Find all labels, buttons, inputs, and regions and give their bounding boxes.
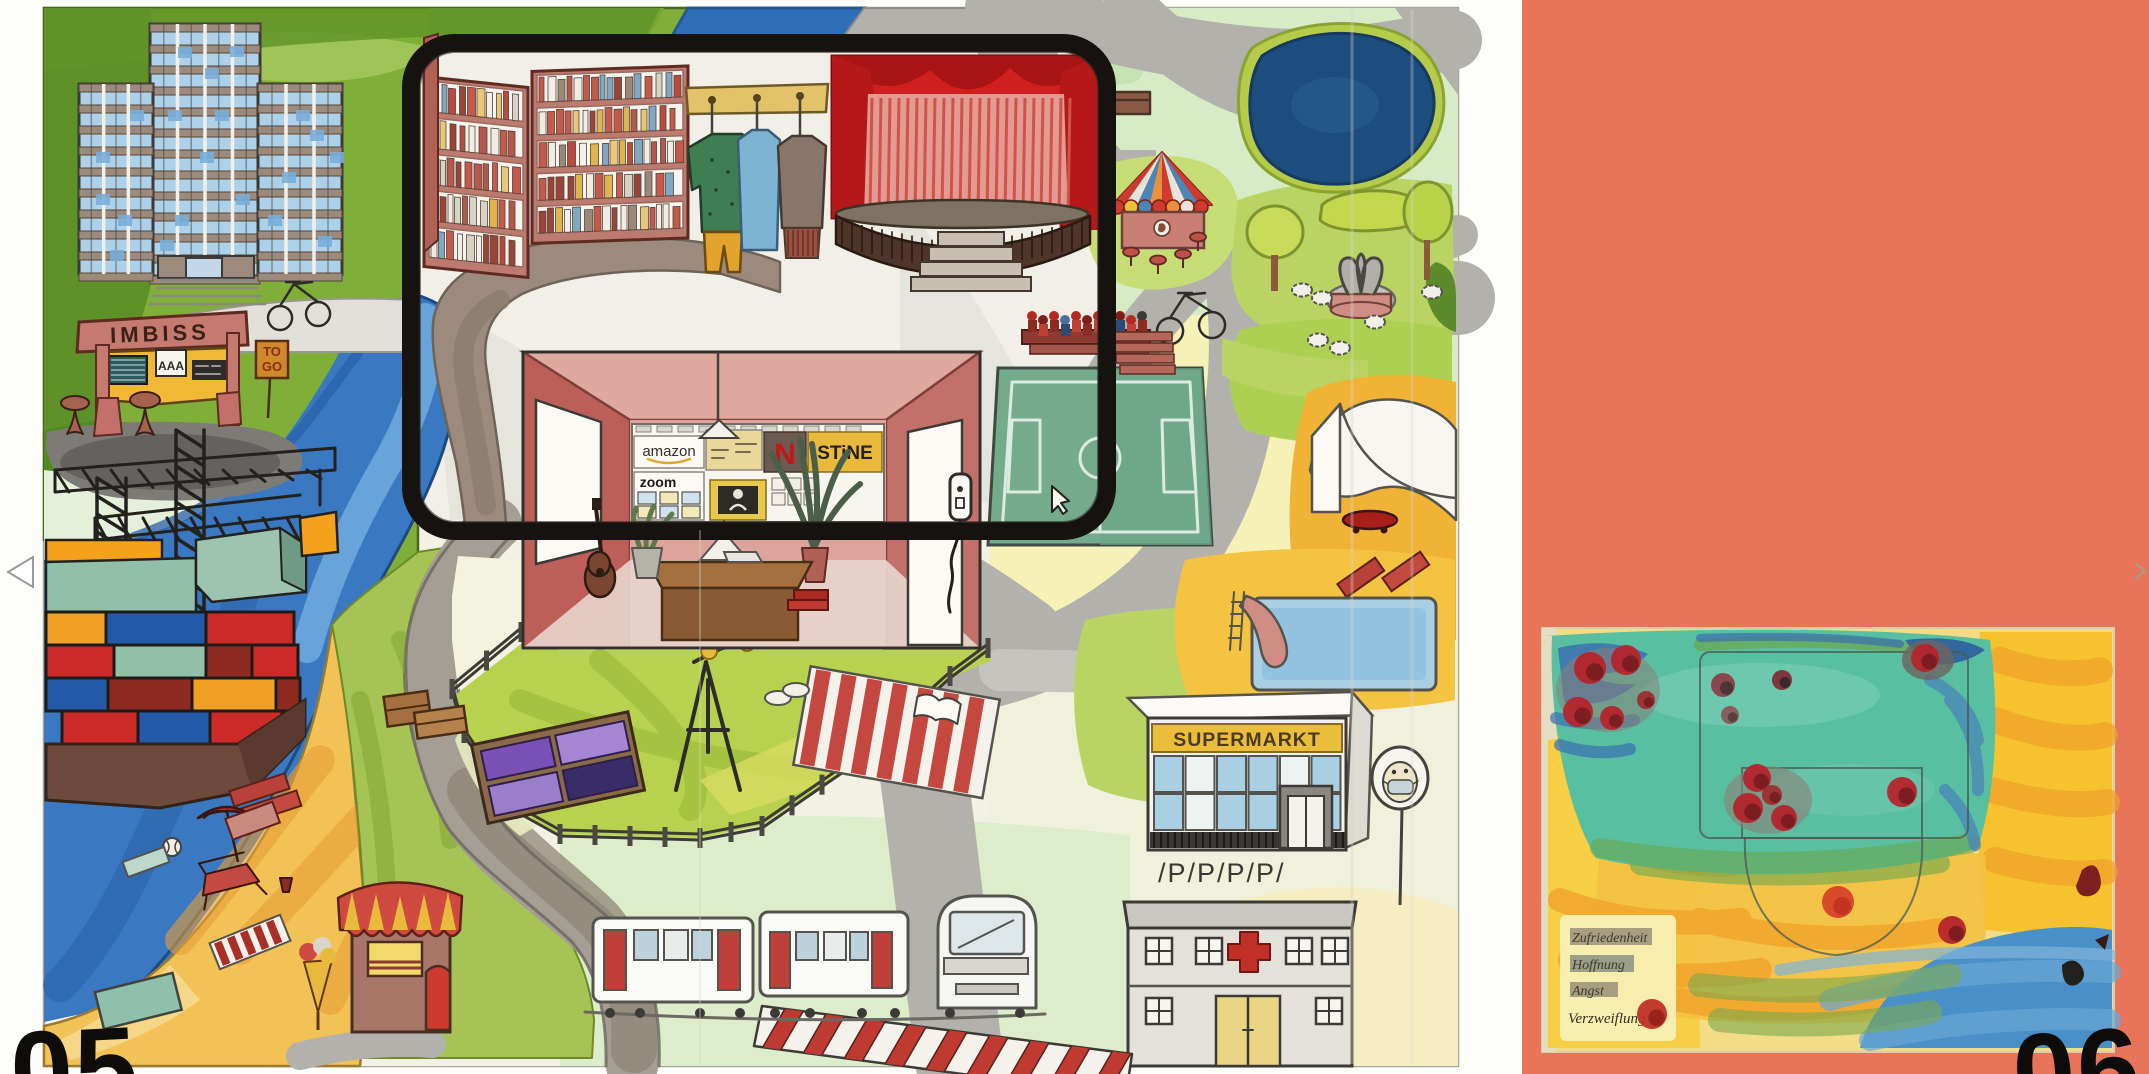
svg-text:Hoffnung: Hoffnung [1571,958,1625,973]
svg-text:amazon: amazon [642,443,695,460]
svg-text:zoom: zoom [640,474,677,490]
svg-text:06: 06 [2009,1004,2146,1074]
svg-text:SUPERMARKT: SUPERMARKT [1173,729,1321,751]
svg-text:Verzweiflung: Verzweiflung [1568,1011,1646,1027]
svg-text:Angst: Angst [1571,984,1605,999]
svg-text:Zufriedenheit: Zufriedenheit [1572,931,1649,946]
svg-text:IMBISS: IMBISS [110,319,211,347]
svg-text:TO: TO [263,344,281,359]
svg-text:GO: GO [262,359,282,374]
svg-text:AAA: AAA [158,359,184,373]
svg-text:/P/P/P/P/: /P/P/P/P/ [1158,858,1286,888]
svg-text:05: 05 [7,1003,142,1074]
